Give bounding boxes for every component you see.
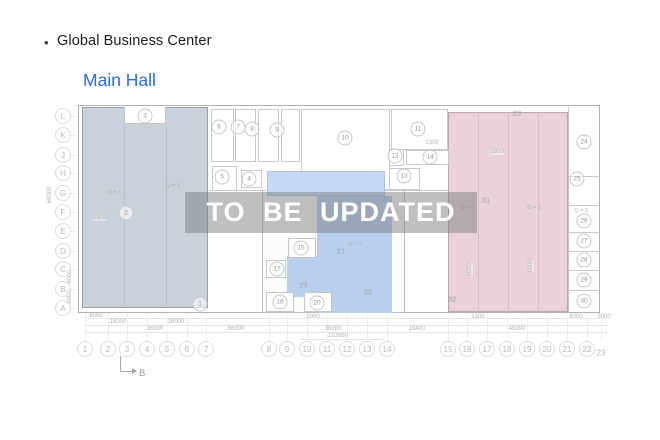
section-marker-arrow-icon — [132, 368, 137, 374]
axis-col-label: 17 — [479, 341, 495, 357]
grid-tick — [187, 313, 188, 341]
wall-line — [508, 114, 509, 310]
dim-label: 6000 — [528, 259, 534, 272]
area-label: Q = 3 — [166, 183, 180, 189]
dim-label: 6000 — [89, 313, 102, 319]
room-label: 22 — [363, 287, 373, 298]
watermark-text: TO BE UPDATED — [206, 197, 455, 228]
area-label: Q = 3 — [527, 205, 541, 211]
room-label: 6 — [212, 120, 227, 135]
wall-line — [568, 205, 600, 206]
room-label: 18 — [273, 295, 288, 310]
dim-label: 6000 — [467, 263, 473, 276]
room-label: 8 — [245, 122, 260, 137]
axis-row-label: F — [55, 204, 71, 220]
axis-col-label: 18 — [499, 341, 515, 357]
dim-label: 45000 — [509, 326, 526, 332]
section-marker-line — [120, 356, 121, 372]
axis-col-label: 16 — [459, 341, 475, 357]
dim-label: 60000 — [47, 187, 53, 204]
wall-line — [166, 126, 167, 306]
axis-col-label: 19 — [519, 341, 535, 357]
grid-tick — [108, 313, 109, 341]
room-label: 21 — [336, 246, 346, 257]
room-label: 28 — [577, 253, 592, 268]
dim-label: 18400 — [409, 326, 426, 332]
room-outline — [281, 109, 300, 162]
axis-row-label: H — [55, 165, 71, 181]
room-label: 19 — [298, 280, 308, 291]
dim-label: 6000 — [569, 314, 582, 320]
axis-row-label: G — [55, 185, 71, 201]
dim-label: 18000 — [110, 319, 127, 325]
grid-tick — [85, 313, 86, 341]
axis-col-label: 1 — [77, 341, 93, 357]
grid-tick — [367, 313, 368, 341]
dimension-line — [300, 339, 385, 340]
grid-tick — [567, 313, 568, 341]
room-label: 10 — [338, 131, 353, 146]
zone-middle-blue — [287, 256, 336, 297]
room-label: 3 — [138, 109, 153, 124]
zone-middle-blue — [340, 297, 392, 312]
axis-col-label: 3 — [119, 341, 135, 357]
dim-label: 36000 — [325, 326, 342, 332]
room-label: 1 — [193, 297, 208, 312]
room-label: 17 — [270, 262, 285, 277]
room-label: 15 — [294, 241, 309, 256]
axis-col-label: 13 — [359, 341, 375, 357]
room-label: 9 — [270, 123, 285, 138]
watermark-banner: TO BE UPDATED — [185, 192, 477, 233]
room-label: 7 — [231, 120, 246, 135]
grid-tick — [587, 313, 588, 341]
room-label: 4 — [242, 172, 257, 187]
room-label: 13 — [397, 169, 412, 184]
axis-col-label: 2 — [100, 341, 116, 357]
area-label: Q = 3 — [107, 190, 121, 196]
room-label: 30 — [577, 294, 592, 309]
axis-row-label: L — [55, 108, 71, 124]
room-label: 27 — [577, 234, 592, 249]
room-label: 32 — [447, 294, 457, 305]
grid-tick — [487, 313, 488, 341]
room-label: 23 — [512, 108, 522, 119]
axis-row-label: A — [55, 300, 71, 316]
grid-tick — [167, 313, 168, 341]
wall-line — [478, 114, 479, 310]
axis-row-label: E — [55, 223, 71, 239]
axis-col-label: 20 — [539, 341, 555, 357]
wall-line — [538, 114, 539, 310]
room-label: 26 — [577, 214, 592, 229]
grid-tick — [448, 313, 449, 341]
axis-col-label: 21 — [559, 341, 575, 357]
room-outline — [211, 109, 234, 162]
axis-col-label: 7 — [198, 341, 214, 357]
grid-tick — [387, 313, 388, 341]
dim-label: 1300 — [425, 140, 438, 146]
wall-line — [568, 290, 600, 291]
dim-label: 18000 — [168, 319, 185, 325]
room-label: 29 — [577, 273, 592, 288]
dim-label: 36000 — [147, 326, 164, 332]
grid-tick — [206, 313, 207, 341]
axis-col-label: 23 — [597, 349, 606, 358]
axis-col-label: 12 — [339, 341, 355, 357]
axis-col-label: 15 — [440, 341, 456, 357]
axis-col-label: 9 — [279, 341, 295, 357]
grid-tick — [527, 313, 528, 341]
dim-label: 56000 — [228, 326, 245, 332]
room-label: 2 — [119, 206, 134, 221]
dim-label: 2000 — [306, 314, 319, 320]
room-label: 12 — [388, 149, 403, 164]
room-label: 25 — [570, 172, 585, 187]
dim-label: 1800 — [490, 149, 503, 155]
axis-col-label: 6 — [179, 341, 195, 357]
grid-tick — [287, 313, 288, 341]
axis-col-label: 10 — [299, 341, 315, 357]
dim-label: 2600 — [93, 215, 106, 221]
axis-row-label: K — [55, 127, 71, 143]
axis-col-label: 8 — [261, 341, 277, 357]
room-label: 31 — [481, 195, 491, 206]
dim-label: 1300 — [471, 314, 484, 320]
axis-col-label: 14 — [379, 341, 395, 357]
axis-col-label: 5 — [159, 341, 175, 357]
axis-row-label: C — [55, 261, 71, 277]
area-label: Q = 3 — [348, 241, 362, 247]
axis-row-label: B — [55, 281, 71, 297]
grid-tick — [269, 313, 270, 341]
room-label: 20 — [310, 296, 325, 311]
grid-tick — [467, 313, 468, 341]
section-marker-label: B — [139, 368, 145, 379]
grid-tick — [127, 313, 128, 341]
axis-col-label: 22 — [579, 341, 595, 357]
axis-row-label: J — [55, 147, 71, 163]
room-label: 5 — [215, 170, 230, 185]
wall-line — [568, 270, 600, 271]
room-label: 24 — [577, 135, 592, 150]
grid-tick — [547, 313, 548, 341]
axis-row-label: D — [55, 243, 71, 259]
axis-col-label: 11 — [319, 341, 335, 357]
room-label: 14 — [423, 150, 438, 165]
dim-label: 3000 — [597, 314, 610, 320]
dim-label: 153860 — [328, 333, 348, 339]
room-label: 11 — [411, 122, 426, 137]
axis-col-label: 4 — [139, 341, 155, 357]
